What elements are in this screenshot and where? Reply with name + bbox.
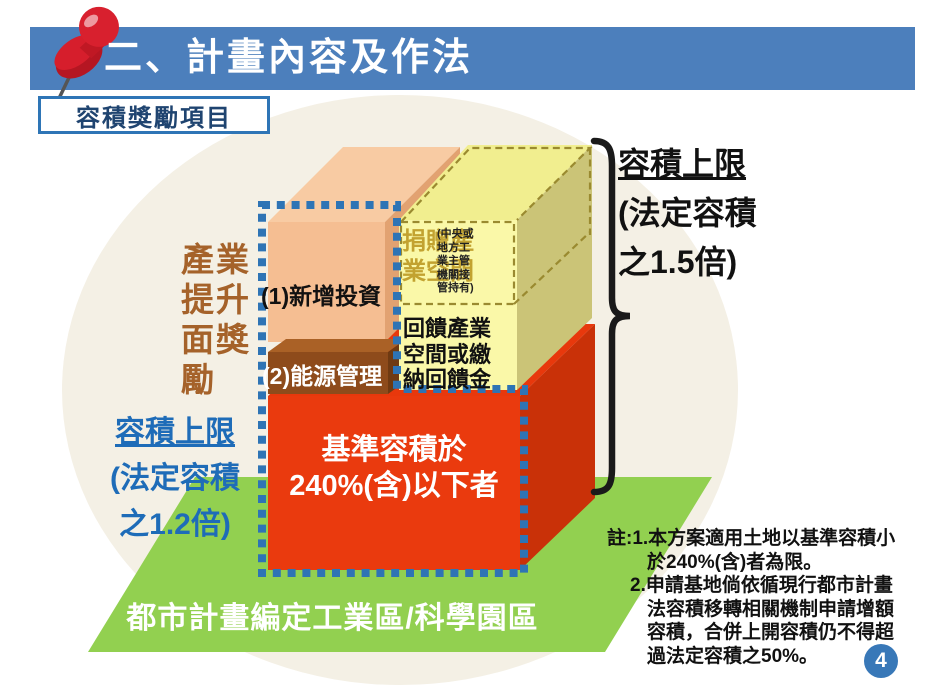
- note-line: 註:1.本方案適用土地以基準容積小: [607, 527, 933, 551]
- note-line: 2.申請基地倘依循現行都市計畫: [607, 574, 933, 598]
- right-limit-label: 容積上限 (法定容積 之1.5倍): [618, 140, 838, 287]
- section-badge-label: 容積獎勵項目: [76, 98, 232, 133]
- section-badge: 容積獎勵項目: [38, 96, 270, 134]
- left-limit-label: 容積上限 (法定容積 之1.2倍): [80, 410, 270, 548]
- page-number-badge: 4: [864, 644, 898, 678]
- note-line: 法容積移轉相關機制申請增額: [607, 598, 933, 622]
- left-limit-title: 容積上限: [80, 410, 270, 456]
- right-limit-title: 容積上限: [618, 140, 838, 189]
- industry-upgrade-award-label: 產業 提升 面獎 勵: [181, 240, 251, 400]
- ground-label: 都市計畫編定工業區/科學園區: [95, 593, 570, 637]
- left-limit-line3: 之1.2倍): [80, 502, 270, 548]
- energy-box-label: (2)能源管理: [262, 357, 382, 391]
- slide-background: 二、計畫內容及作法 容積獎勵項目 產業 提升 面獎 勵 容積上限 (法定容積 之…: [0, 0, 933, 685]
- right-limit-line2: (法定容積: [618, 189, 838, 238]
- right-limit-line3: 之1.5倍): [618, 238, 838, 287]
- left-limit-line2: (法定容積: [80, 456, 270, 502]
- donate-authority-note: (中央或 地方工 業主管 機關接 管持有): [437, 228, 474, 296]
- base-box-label: 基準容積於 240%(含)以下者: [268, 432, 520, 504]
- invest-box-label: (1)新增投資: [261, 277, 381, 311]
- feedback-space-label: 回饋產業 空間或繳 納回饋金: [403, 316, 491, 393]
- slide-title: 二、計畫內容及作法: [104, 36, 473, 80]
- note-line: 容積，合併上開容積仍不得超: [607, 621, 933, 645]
- note-line: 於240%(含)者為限。: [607, 551, 933, 575]
- energy-box-top: [268, 339, 406, 352]
